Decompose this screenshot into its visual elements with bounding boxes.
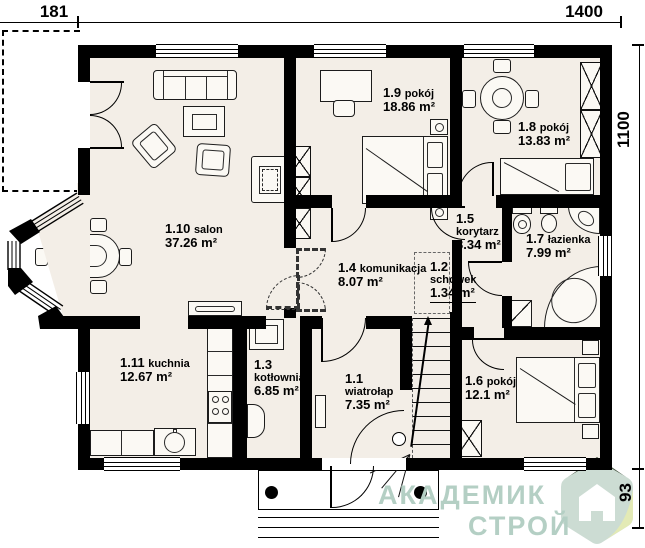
room-area: 12.67 m² [120,369,172,384]
sofa-cushion [185,76,186,99]
chair [462,90,476,108]
logo-text-line2: СТРОЙ [468,511,571,542]
room-name: pokój [405,88,434,100]
chair [493,59,511,73]
nightstand [582,340,599,355]
armchair [195,143,231,177]
room-area: 7.35 m² [345,398,393,412]
room-label-pokoj-19: 1.9 pokój 18.86 m² [383,86,435,115]
room-id: 1.4 [338,260,356,275]
room-name: łazienka [548,234,591,246]
room-area: 3.34 m² [456,238,501,252]
bed-single [500,158,594,195]
stove [208,391,232,423]
pillow [578,393,596,418]
room-id: 1.10 [165,221,190,236]
burner [212,396,219,403]
nightstand [582,424,599,439]
dim-top-left: 181 [28,2,80,22]
sofa-cushion [206,76,207,99]
room-name: komunikacja [360,263,427,275]
wall [40,316,140,329]
room-label-korytarz: 1.5 korytarz 3.34 m² [456,212,501,253]
fireplace-insert [262,169,278,191]
chair [119,248,132,266]
wall [300,316,322,329]
room-label-komunikacja: 1.4 komunikacja 8.07 m² [338,261,426,290]
sink-basin [575,208,597,230]
door-leaf [90,147,124,149]
room-label-pokoj-16: 1.6 pokój 12.1 m² [465,374,516,403]
room-id: 1.2 [430,260,476,274]
wall [586,458,612,470]
room-area: 13.83 m² [518,133,570,148]
pillow [578,363,596,388]
sink-bowl [164,432,185,453]
water-heater [247,404,265,438]
sofa-back [164,76,228,77]
room-name: pokój [487,376,516,388]
window [464,44,534,58]
bay-window [0,183,100,335]
door-leaf [492,162,494,196]
window [104,457,180,471]
hall-cabinet [315,395,326,428]
window [156,44,238,58]
room-area: 8.07 m² [338,274,383,289]
sink-tap [173,429,177,433]
stair-arrow-head [424,316,432,325]
pillow [565,163,591,191]
window [598,236,612,276]
room-id: 1.7 [526,231,544,246]
porch-step [258,527,439,528]
window [314,44,386,58]
floor-plan: 181 1400 1100 93 [0,0,645,548]
dim-bottom-right: 93 [616,462,636,502]
wall [502,296,512,328]
burner [222,396,229,403]
porch-column [265,486,278,499]
room-label-schowek: 1.2 schowek 1.34 m² [430,260,476,303]
room-id: 1.3 [254,358,305,372]
bed-double [516,357,600,423]
window [76,372,90,424]
room-area: 7.99 m² [526,245,571,260]
wall [400,316,412,390]
kitchen-counter [207,318,233,458]
desk-chair [333,100,355,117]
room-id: 1.8 [518,119,536,134]
wall [504,327,612,340]
counter-divider [208,351,232,352]
room-label-pokoj-18: 1.8 pokój 13.83 m² [518,120,570,149]
wall [406,458,524,470]
wall [452,327,474,340]
round-table-inner [492,88,512,108]
sideboard [188,301,242,316]
dim-right: 1100 [614,56,634,148]
room-label-lazienka: 1.7 łazienka 7.99 m² [526,232,591,261]
room-area: 12.1 m² [465,387,510,402]
pillow [427,142,443,168]
coffee-table-inner [192,114,217,130]
counter-divider [208,423,232,424]
counter-divider [208,375,232,376]
dim-line-right [639,45,640,470]
nightstand [430,119,448,135]
dim-tick [632,44,644,46]
french-door-gap [78,82,90,148]
coffee-table [183,106,225,137]
wall [284,195,332,208]
window [524,457,586,471]
round-table [480,76,524,120]
sideboard-slot [195,306,235,312]
toilet-seat [518,220,527,229]
room-area: 37.26 m² [165,235,217,250]
room-area: 6.85 m² [254,384,305,398]
headboard-line [574,358,575,422]
wall [284,45,296,248]
room-id: 1.5 [456,212,501,226]
desk [320,70,372,102]
room-label-kuchnia: 1.11 kuchnia 12.67 m² [120,356,190,385]
chair [525,90,539,108]
wall [233,329,247,458]
terrace-outline [2,30,80,192]
room-id: 1.9 [383,85,401,100]
kitchen-sink [154,428,196,456]
burner [222,408,229,415]
porch-step [258,517,439,518]
dim-line-top [0,22,622,23]
room-name: salon [194,224,223,236]
dim-tick [632,527,644,529]
wall [450,57,462,195]
wall [300,329,312,470]
wall [502,207,512,262]
porch-step [258,537,439,538]
armchair-seat [201,149,224,170]
room-label-kotlownia: 1.3 kotłownia 6.85 m² [254,358,305,399]
counter-divider [121,431,122,455]
wall [188,316,266,329]
room-id: 1.6 [465,373,483,388]
dim-tick [620,16,622,28]
burner [212,408,219,415]
door-leaf [266,309,300,310]
room-name: pokój [540,122,569,134]
lamp [435,123,444,132]
fireplace-tv-unit [251,156,288,203]
headboard-line [423,137,424,203]
room-name: kuchnia [148,358,190,370]
chair [493,120,511,134]
dim-top-right: 1400 [552,2,616,22]
wall [496,195,612,208]
bed-double [362,136,448,204]
dim-tick [77,16,79,28]
room-id: 1.1 [345,372,393,386]
room-area: 18.86 m² [383,99,435,114]
room-area: 1.34 m² [430,286,476,302]
logo-text-line1: АКАДЕМИК [378,480,546,511]
armchair-seat [139,130,170,161]
dim-line-right2 [639,470,640,528]
room-label-wiatrolap: 1.1 wiatrołap 7.35 m² [345,372,393,413]
room-label-salon: 1.10 salon 37.26 m² [165,222,223,251]
room-id: 1.11 [120,355,145,370]
kitchen-counter [90,430,154,456]
sofa [153,70,237,100]
